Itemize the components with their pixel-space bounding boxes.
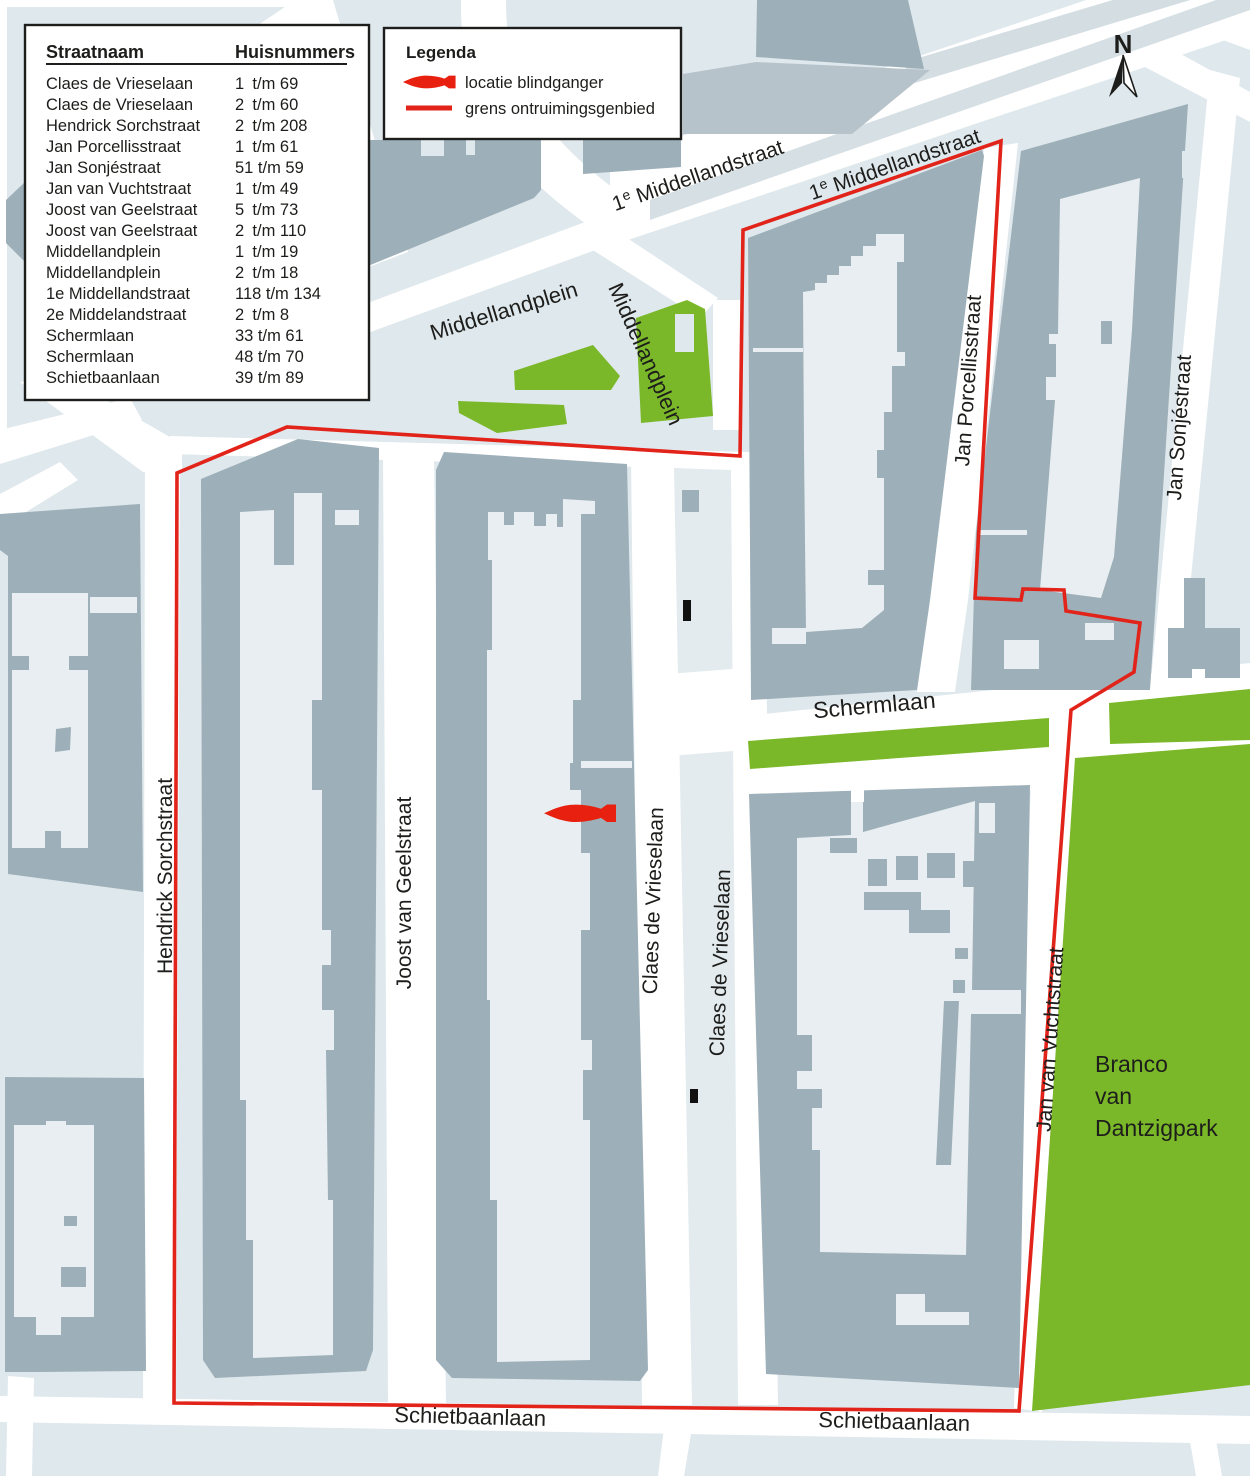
svg-text:51 t/m 59: 51 t/m 59	[235, 159, 304, 177]
svg-text:2 t/m 110: 2 t/m 110	[235, 222, 306, 240]
svg-text:Legenda: Legenda	[406, 43, 476, 62]
svg-text:van: van	[1095, 1083, 1132, 1109]
svg-text:48 t/m 70: 48 t/m 70	[235, 348, 304, 366]
svg-text:Claes de Vrieselaan: Claes de Vrieselaan	[46, 96, 193, 114]
svg-text:Huisnummers: Huisnummers	[235, 42, 355, 62]
svg-text:Middellandplein: Middellandplein	[46, 243, 161, 261]
svg-text:Claes de Vrieselaan: Claes de Vrieselaan	[46, 75, 193, 93]
svg-text:Joost van Geelstraat: Joost van Geelstraat	[46, 201, 198, 219]
svg-text:Jan van Vuchtstraat: Jan van Vuchtstraat	[46, 180, 192, 198]
svg-text:Hendrick Sorchstraat: Hendrick Sorchstraat	[46, 117, 200, 135]
svg-text:39 t/m 89: 39 t/m 89	[235, 369, 304, 387]
svg-text:Middellandplein: Middellandplein	[46, 264, 161, 282]
svg-text:2 t/m 8: 2 t/m 8	[235, 306, 289, 324]
svg-text:grens ontruimingsgenbied: grens ontruimingsgenbied	[465, 100, 655, 118]
svg-text:1e Middellandstraat: 1e Middellandstraat	[46, 285, 190, 303]
svg-text:2e Middelandstraat: 2e Middelandstraat	[46, 306, 187, 324]
svg-text:Schermlaan: Schermlaan	[46, 327, 134, 345]
svg-text:118 t/m 134: 118 t/m 134	[235, 285, 321, 303]
svg-text:Hendrick Sorchstraat: Hendrick Sorchstraat	[154, 778, 177, 974]
svg-text:Joost van Geelstraat: Joost van Geelstraat	[46, 222, 198, 240]
svg-text:33 t/m 61: 33 t/m 61	[235, 327, 304, 345]
svg-text:2 t/m 18: 2 t/m 18	[235, 264, 298, 282]
svg-text:Schietbaanlaan: Schietbaanlaan	[818, 1407, 970, 1436]
svg-text:Dantzigpark: Dantzigpark	[1095, 1115, 1218, 1141]
svg-text:1 t/m 61: 1 t/m 61	[235, 138, 298, 156]
svg-text:Straatnaam: Straatnaam	[46, 42, 144, 62]
svg-text:1 t/m 19: 1 t/m 19	[235, 243, 298, 261]
svg-text:Jan Porcellisstraat: Jan Porcellisstraat	[46, 138, 181, 156]
svg-text:2 t/m 60: 2 t/m 60	[235, 96, 298, 114]
svg-text:1 t/m 49: 1 t/m 49	[235, 180, 298, 198]
svg-text:Schietbaanlaan: Schietbaanlaan	[394, 1402, 546, 1431]
svg-text:locatie blindganger: locatie blindganger	[465, 74, 604, 92]
svg-text:Jan Sonjéstraat: Jan Sonjéstraat	[46, 159, 161, 177]
svg-text:5 t/m 73: 5 t/m 73	[235, 201, 298, 219]
svg-text:Branco: Branco	[1095, 1051, 1168, 1077]
svg-text:2 t/m 208: 2 t/m 208	[235, 117, 307, 135]
svg-text:N: N	[1114, 29, 1133, 59]
svg-text:Joost van Geelstraat: Joost van Geelstraat	[393, 797, 416, 990]
svg-text:1 t/m 69: 1 t/m 69	[235, 75, 298, 93]
svg-text:Schermlaan: Schermlaan	[46, 348, 134, 366]
svg-text:Schietbaanlaan: Schietbaanlaan	[46, 369, 160, 387]
